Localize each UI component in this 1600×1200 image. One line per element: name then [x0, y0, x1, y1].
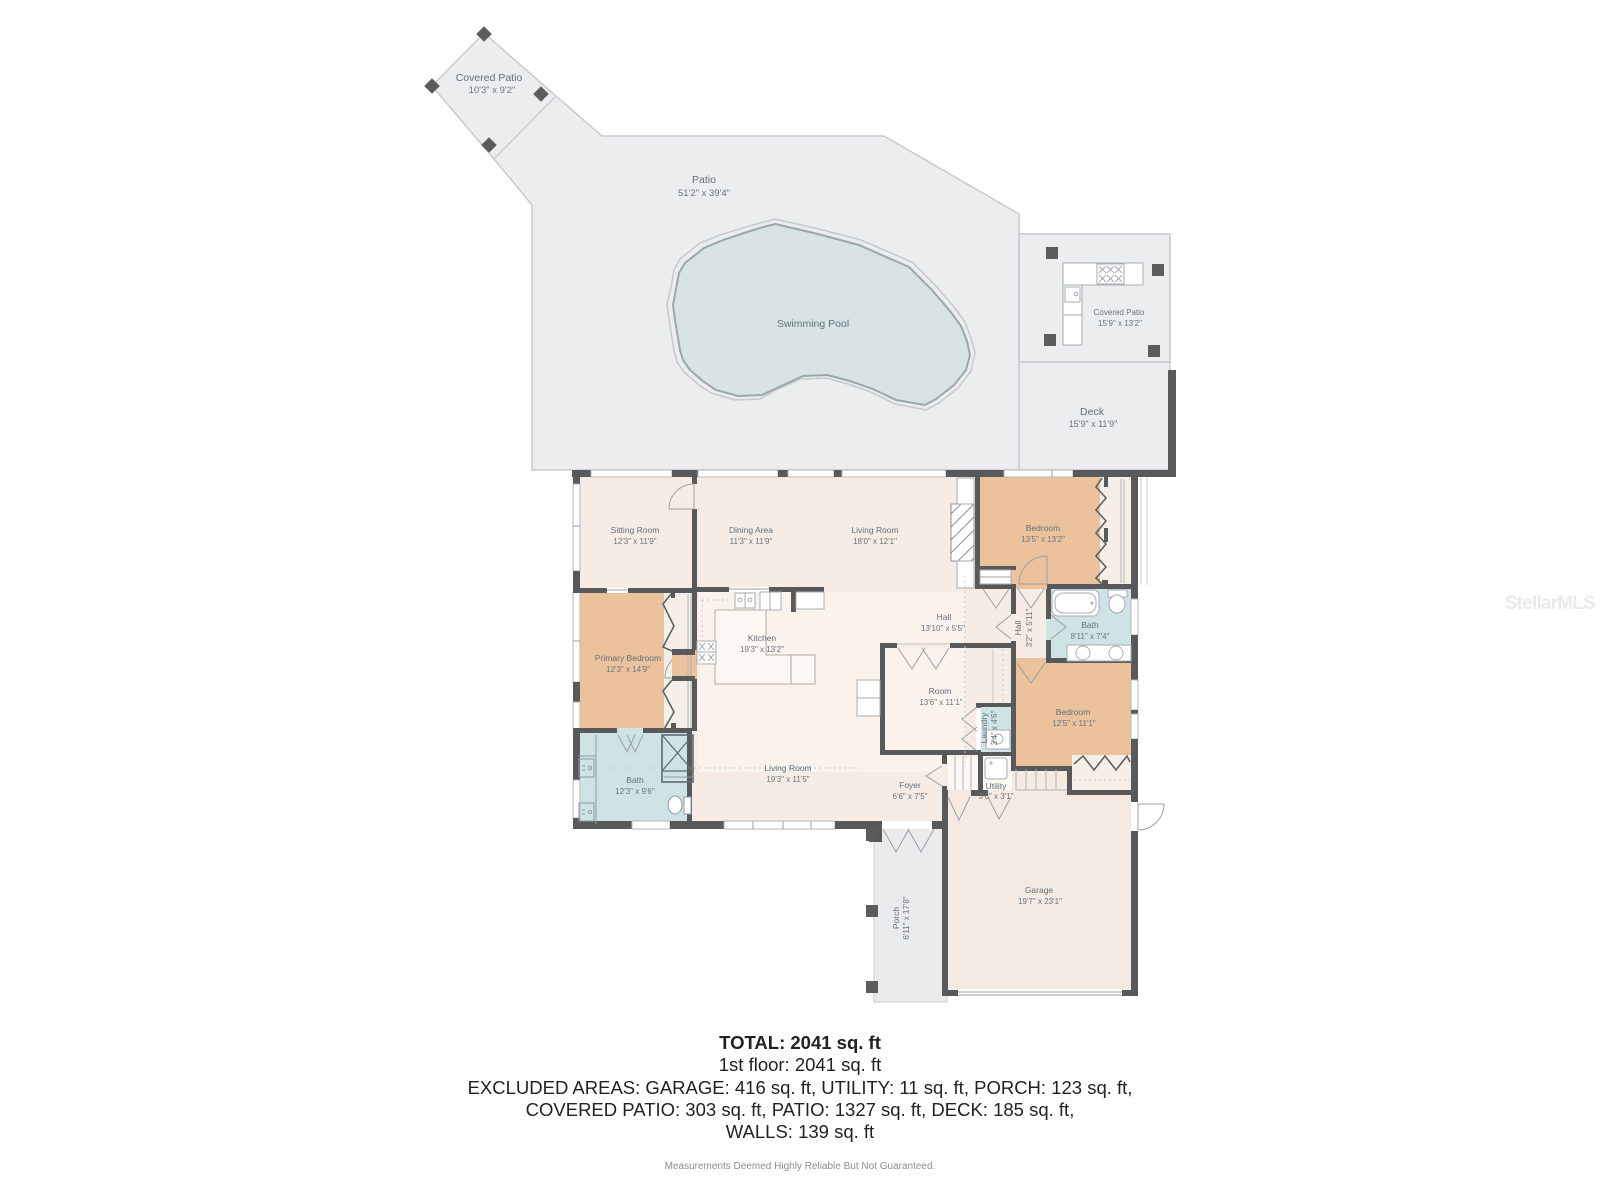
svg-text:11'3" x 11'9": 11'3" x 11'9"	[730, 537, 773, 546]
svg-text:8'11" x 7'4": 8'11" x 7'4"	[1071, 632, 1110, 641]
svg-text:19'3" x 13'2": 19'3" x 13'2"	[740, 645, 784, 654]
svg-text:Garage: Garage	[1025, 885, 1054, 895]
svg-text:Room: Room	[929, 686, 952, 696]
svg-text:13'5" x 13'2": 13'5" x 13'2"	[1021, 535, 1065, 544]
svg-text:Kitchen: Kitchen	[748, 633, 777, 643]
svg-text:Living Room: Living Room	[851, 525, 898, 535]
svg-text:12'3" x 11'9": 12'3" x 11'9"	[613, 537, 656, 546]
svg-text:19'7" x 23'1": 19'7" x 23'1"	[1018, 897, 1062, 906]
svg-text:Bedroom: Bedroom	[1026, 523, 1061, 533]
svg-text:Swimming Pool: Swimming Pool	[777, 318, 849, 330]
svg-text:3'2" x 5'11": 3'2" x 5'11"	[1025, 608, 1034, 647]
svg-text:15'9" x 13'2": 15'9" x 13'2"	[1098, 319, 1142, 328]
svg-text:13'6" x 11'1": 13'6" x 11'1"	[919, 698, 962, 707]
svg-text:3'4" x 4'6": 3'4" x 4'6"	[990, 710, 999, 745]
svg-text:12'3" x 9'6": 12'3" x 9'6"	[615, 787, 655, 796]
svg-text:10'3" x 9'2": 10'3" x 9'2"	[469, 85, 516, 96]
svg-text:6'6" x 7'5": 6'6" x 7'5"	[893, 792, 928, 801]
svg-text:13'10" x 5'5": 13'10" x 5'5"	[921, 624, 965, 633]
svg-text:6'11" x 17'8": 6'11" x 17'8"	[902, 896, 911, 939]
svg-text:19'3" x 11'5": 19'3" x 11'5"	[766, 775, 809, 784]
svg-text:Bath: Bath	[1081, 620, 1099, 630]
svg-text:Patio: Patio	[692, 174, 716, 186]
svg-text:Covered Patio: Covered Patio	[1094, 308, 1145, 317]
svg-text:Porch: Porch	[891, 907, 901, 929]
svg-text:3'6" x 3'1": 3'6" x 3'1"	[979, 792, 1014, 801]
svg-text:Deck: Deck	[1080, 406, 1105, 418]
svg-text:12'3" x 14'9": 12'3" x 14'9"	[606, 665, 650, 674]
svg-text:Sitting Room: Sitting Room	[611, 525, 660, 535]
svg-text:18'0" x 12'1": 18'0" x 12'1"	[853, 537, 897, 546]
svg-text:12'5" x 11'1": 12'5" x 11'1"	[1052, 719, 1095, 728]
svg-text:Bedroom: Bedroom	[1056, 707, 1091, 717]
svg-text:Hall: Hall	[1013, 621, 1023, 636]
svg-text:Primary Bedroom: Primary Bedroom	[595, 653, 661, 663]
svg-text:51'2" x 39'4": 51'2" x 39'4"	[678, 188, 730, 199]
svg-text:StellarMLS: StellarMLS	[1505, 593, 1595, 614]
svg-text:Foyer: Foyer	[899, 780, 921, 790]
svg-text:Laundry: Laundry	[979, 712, 989, 743]
svg-text:Dining Area: Dining Area	[729, 525, 773, 535]
svg-text:Hall: Hall	[937, 612, 952, 622]
svg-text:Covered Patio: Covered Patio	[456, 72, 523, 84]
svg-text:Living Room: Living Room	[764, 763, 811, 773]
svg-text:15'9" x 11'9": 15'9" x 11'9"	[1069, 419, 1118, 429]
svg-text:Bath: Bath	[626, 775, 644, 785]
svg-text:Utility: Utility	[986, 781, 1008, 791]
